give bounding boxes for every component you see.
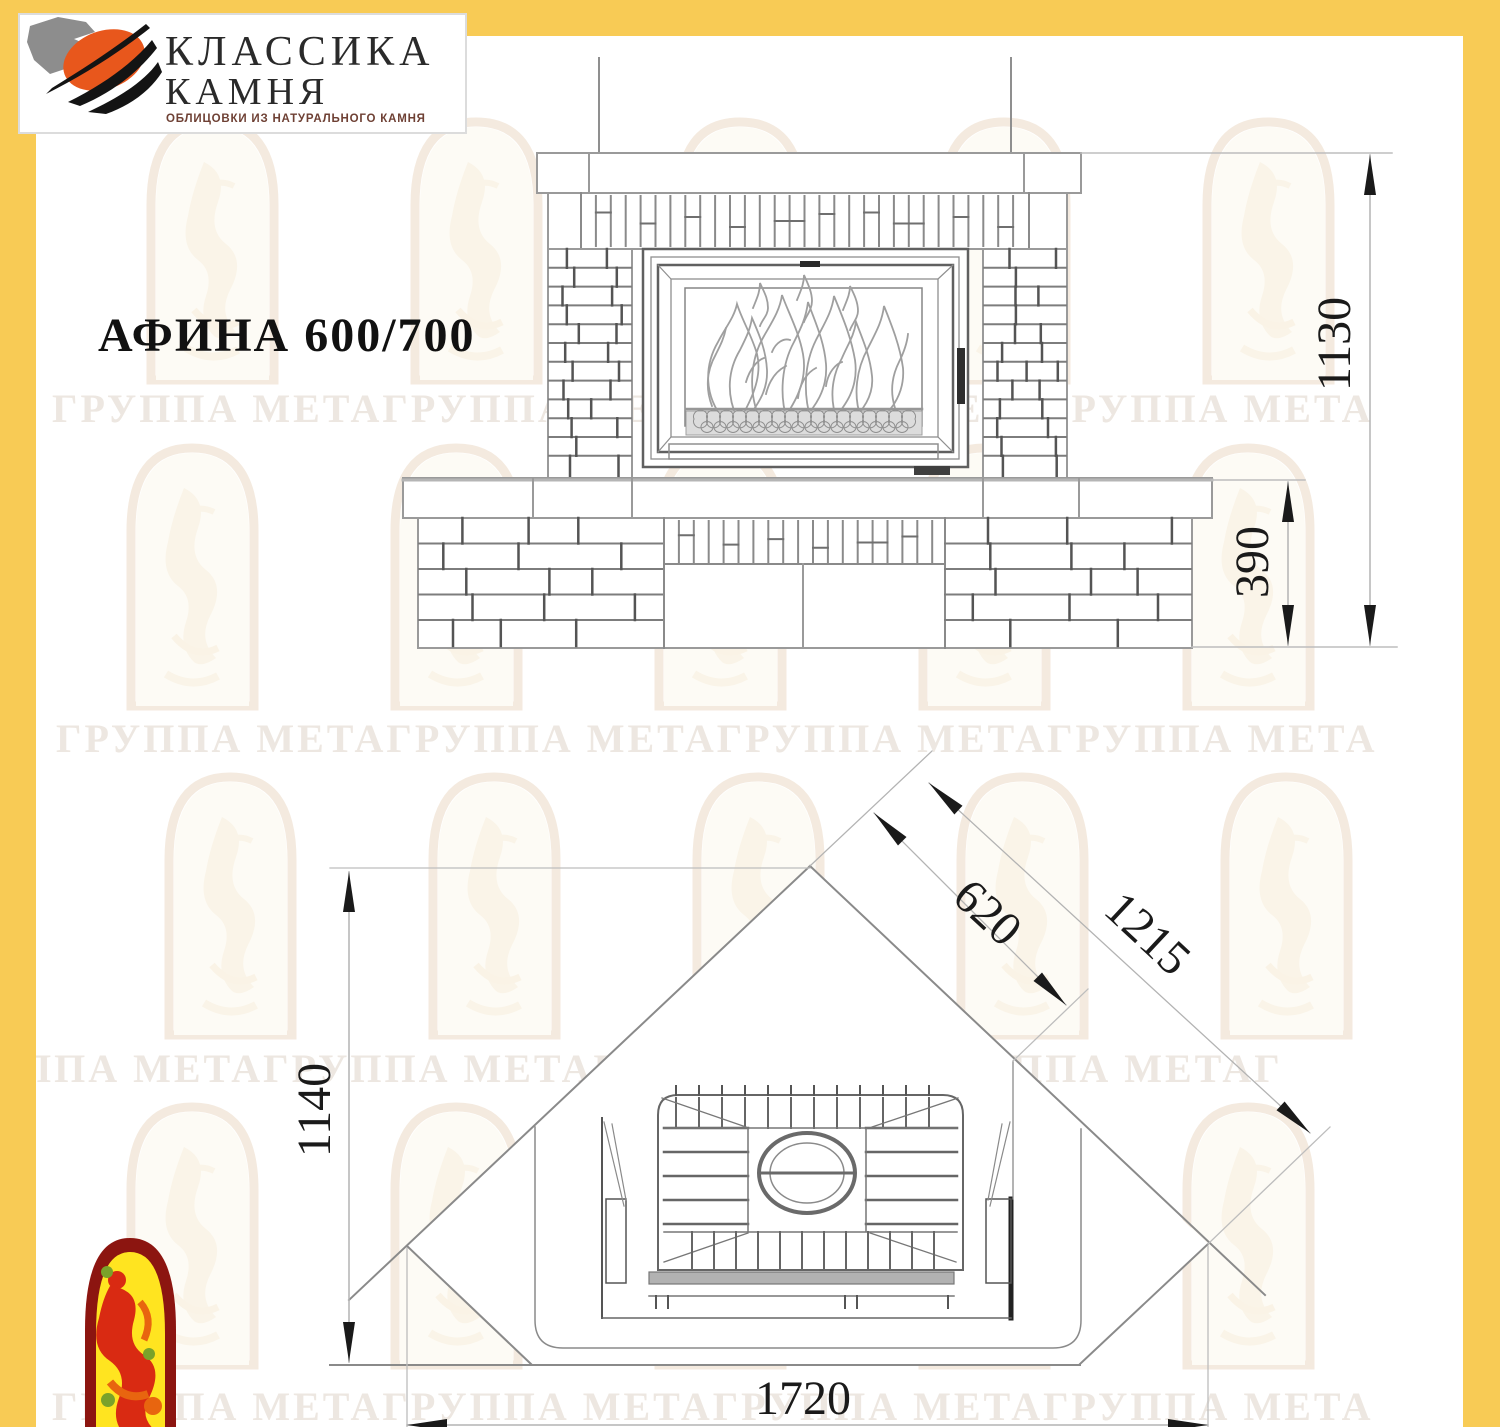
svg-text:390: 390 [1226, 526, 1279, 598]
svg-text:1130: 1130 [1308, 297, 1361, 391]
svg-text:1720: 1720 [755, 1372, 851, 1425]
svg-text:КАМНЯ: КАМНЯ [165, 71, 329, 113]
svg-text:ОБЛИЦОВКИ ИЗ НАТУРАЛЬНОГО КАМН: ОБЛИЦОВКИ ИЗ НАТУРАЛЬНОГО КАМНЯ [166, 113, 426, 125]
svg-text:1140: 1140 [288, 1063, 341, 1157]
svg-text:КЛАССИКА: КЛАССИКА [165, 29, 434, 75]
svg-text:ГРУППА МЕТАГРУППА МЕТАГРУППА М: ГРУППА МЕТАГРУППА МЕТАГРУППА МЕТАГРУППА … [56, 716, 1377, 761]
svg-text:АФИНА 600/700: АФИНА 600/700 [98, 309, 476, 362]
